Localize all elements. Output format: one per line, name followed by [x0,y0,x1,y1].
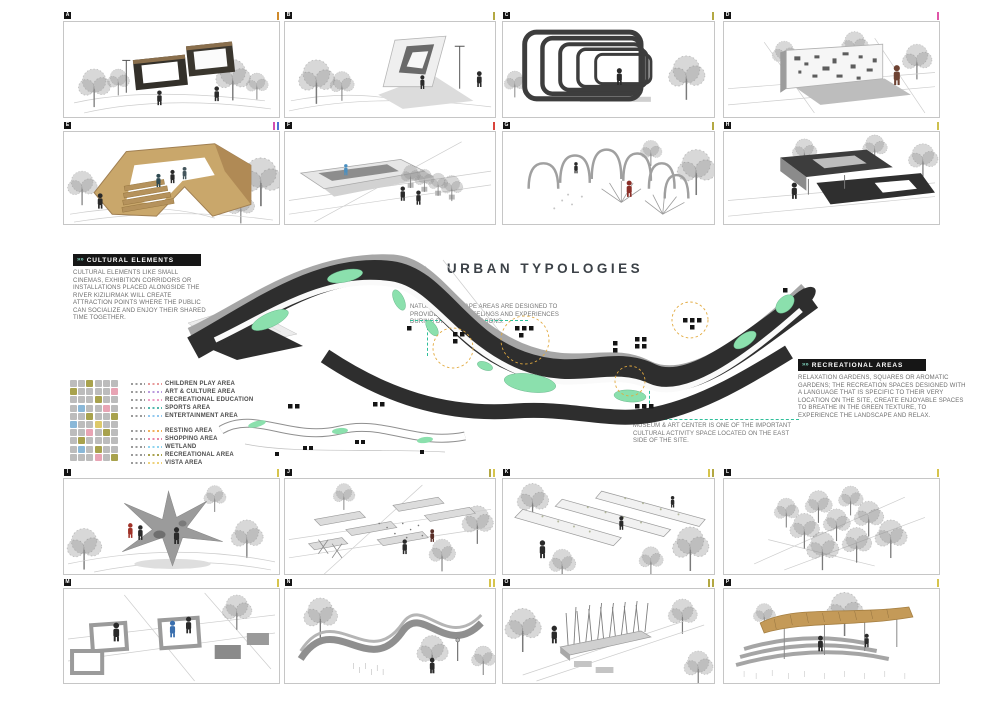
panel-badge: E [64,122,71,129]
panel-b: B [284,21,496,118]
panel-badge: O [503,579,510,586]
corner-tick [273,122,280,130]
panel-l: L [723,478,940,575]
panel-g: G [502,131,715,225]
panel-badge: L [724,469,731,476]
corner-tick [708,579,715,587]
map-badges [275,440,424,456]
panel-badge: N [285,579,292,586]
corner-tick [277,12,280,20]
corner-tick [493,122,496,130]
legend-icon-grid [70,380,118,461]
panel-render-market-garden [285,479,495,574]
panel-render-sunken-garden [285,132,495,224]
panel-render-arch-colonnade [503,132,714,224]
panel-badge: H [724,122,731,129]
corner-tick [937,122,940,130]
chevrons-icon: »» [77,257,84,263]
panel-badge: B [285,12,292,19]
corner-tick [937,579,940,587]
panel-n: N [284,588,496,684]
panel-render-seating-pods [64,589,279,683]
corner-tick [712,122,715,130]
panel-badge: D [724,12,731,19]
panel-render-pole-bench [503,589,714,683]
panel-render-tree-grove [724,479,939,574]
panel-c: C [502,21,715,118]
panel-m: M [63,588,280,684]
corner-tick [937,469,940,477]
panel-badge: G [503,122,510,129]
panel-render-serpentine-benches [285,589,495,683]
corner-tick [712,12,715,20]
panel-render-wood-amphitheater [64,132,279,224]
corner-tick [937,12,940,20]
panel-badge: C [503,12,510,19]
panel-render-perforated-wall [724,22,939,117]
panel-render-star-sculpture [64,479,279,574]
panel-badge: A [64,12,71,19]
corner-tick [493,12,496,20]
section-header-cultural: »» CULTURAL ELEMENTS [73,254,201,266]
panel-badge: F [285,122,292,129]
panel-p: P [723,588,940,684]
corner-tick [489,469,496,477]
panel-j: J [284,478,496,575]
section-header-label: CULTURAL ELEMENTS [87,257,174,264]
panel-k: K [502,478,715,575]
panel-i: I [63,478,280,575]
corner-tick [277,579,280,587]
corner-tick [489,579,496,587]
panel-render-dark-pavilion [724,132,939,224]
panel-a: A [63,21,280,118]
panel-render-timber-canopy [724,589,939,683]
panel-badge: I [64,469,71,476]
section-header-label: RECREATIONAL AREAS [812,362,904,369]
masterplan-outline-map [215,400,470,465]
panel-render-box-pavilions [64,22,279,117]
presentation-board: A B [0,0,1000,707]
corner-tick [277,469,280,477]
panel-render-planted-walkway [503,479,714,574]
panel-d: D [723,21,940,118]
panel-h: H [723,131,940,225]
panel-badge: J [285,469,292,476]
panel-render-loop-tunnel [503,22,714,117]
corner-tick [708,469,715,477]
panel-e: E [63,131,280,225]
panel-render-portal-frame [285,22,495,117]
panel-badge: K [503,469,510,476]
panel-o: O [502,588,715,684]
panel-badge: M [64,579,71,586]
panel-badge: P [724,579,731,586]
section-body-recreational: RELAXATION GARDENS, SQUARES OR AROMATIC … [798,375,966,420]
panel-f: F [284,131,496,225]
